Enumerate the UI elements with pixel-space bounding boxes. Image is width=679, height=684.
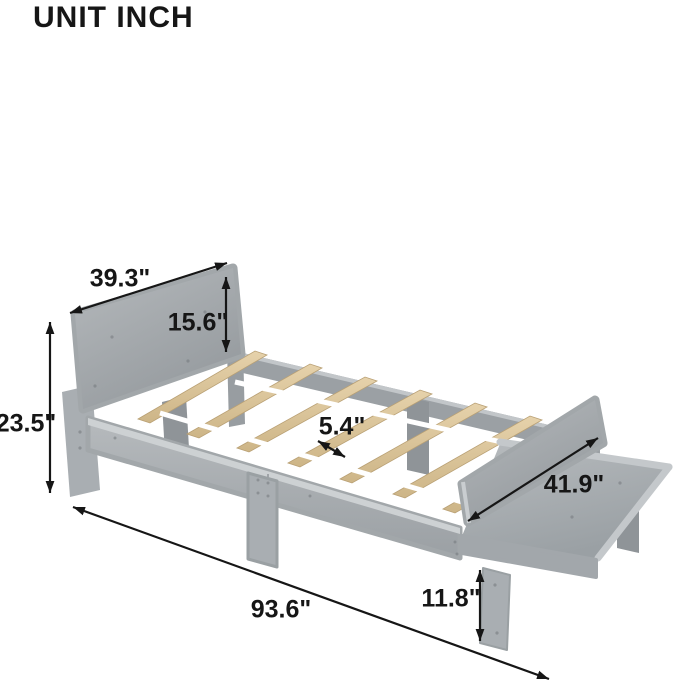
dim-label-leg-height: 11.8" [421,585,480,614]
bed-frame-illustration [0,0,679,684]
dim-label-bed-length: 93.6" [251,596,312,625]
dim-label-headboard-height: 23.5" [0,410,56,439]
product-dimension-diagram: UNIT INCH [0,0,679,684]
footboard-front-leg [480,568,510,650]
center-front-leg [248,473,277,567]
dim-label-headboard-width: 39.3" [90,265,151,294]
dim-label-headboard-panel-height: 15.6" [168,309,229,338]
dim-label-slat-gap: 5.4" [319,413,366,442]
dim-label-guard-rail-length: 41.9" [544,471,605,500]
